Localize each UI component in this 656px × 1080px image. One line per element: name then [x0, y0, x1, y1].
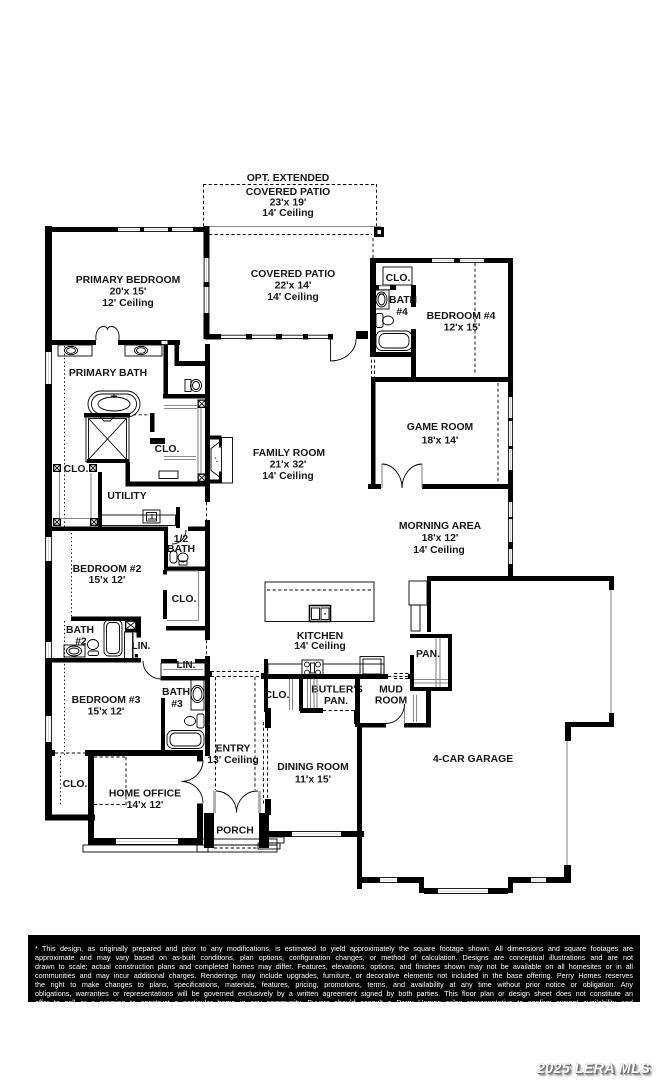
svg-text:COVERED PATIO: COVERED PATIO — [251, 269, 335, 280]
svg-text:FAMILY ROOM: FAMILY ROOM — [253, 448, 325, 459]
svg-text:BATH: BATH — [162, 687, 190, 698]
svg-text:13' Ceiling: 13' Ceiling — [207, 755, 259, 766]
svg-text:LIN.: LIN. — [132, 641, 151, 652]
svg-text:CLO.: CLO. — [386, 273, 411, 284]
svg-text:ENTRY: ENTRY — [216, 744, 251, 755]
svg-text:CLO.: CLO. — [64, 464, 89, 475]
svg-text:BEDROOM #2: BEDROOM #2 — [73, 564, 142, 575]
svg-text:ROOM: ROOM — [375, 696, 407, 707]
svg-text:BEDROOM #3: BEDROOM #3 — [72, 695, 141, 706]
svg-text:MUD: MUD — [379, 685, 403, 696]
svg-text:14'x 12': 14'x 12' — [127, 800, 164, 811]
svg-text:LIN.: LIN. — [177, 660, 196, 671]
svg-text:DINING ROOM: DINING ROOM — [277, 762, 349, 773]
svg-text:22'x 14': 22'x 14' — [275, 281, 312, 292]
svg-text:14' Ceiling: 14' Ceiling — [267, 292, 319, 303]
svg-text:15'x 12': 15'x 12' — [88, 707, 125, 718]
svg-text:PORCH: PORCH — [216, 826, 254, 837]
svg-text:CLO.: CLO. — [155, 444, 180, 455]
svg-text:UTILITY: UTILITY — [107, 491, 146, 502]
svg-text:HOME OFFICE: HOME OFFICE — [109, 789, 181, 800]
svg-text:COVERED PATIO: COVERED PATIO — [246, 187, 330, 198]
svg-text:14' Ceiling: 14' Ceiling — [413, 545, 465, 556]
svg-text:PAN.: PAN. — [324, 696, 348, 707]
svg-text:14' Ceiling: 14' Ceiling — [294, 641, 346, 652]
svg-text:CLO.: CLO. — [265, 690, 290, 701]
svg-text:18'x 12': 18'x 12' — [422, 533, 459, 544]
svg-text:12' Ceiling: 12' Ceiling — [102, 298, 154, 309]
svg-text:20'x 15': 20'x 15' — [110, 287, 147, 298]
svg-text:PAN.: PAN. — [416, 649, 440, 660]
svg-text:PRIMARY BATH: PRIMARY BATH — [69, 368, 147, 379]
svg-text:OPT. EXTENDED: OPT. EXTENDED — [247, 173, 330, 184]
svg-text:BEDROOM #4: BEDROOM #4 — [427, 311, 496, 322]
svg-text:#3: #3 — [171, 699, 183, 710]
svg-text:14' Ceiling: 14' Ceiling — [262, 471, 314, 482]
svg-text:PRIMARY BEDROOM: PRIMARY BEDROOM — [76, 275, 181, 286]
svg-text:#4: #4 — [396, 307, 408, 318]
svg-text:CLO.: CLO. — [63, 779, 88, 790]
svg-text:11'x 15': 11'x 15' — [295, 775, 331, 786]
svg-text:BATH: BATH — [66, 625, 94, 636]
svg-text:18'x 14': 18'x 14' — [422, 436, 459, 447]
svg-text:BATH: BATH — [389, 295, 417, 306]
svg-text:14' Ceiling: 14' Ceiling — [262, 208, 314, 219]
svg-text:MORNING AREA: MORNING AREA — [399, 521, 482, 532]
svg-text:4-CAR GARAGE: 4-CAR GARAGE — [433, 754, 513, 765]
svg-text:21'x 32': 21'x 32' — [270, 460, 307, 471]
svg-text:15'x 12': 15'x 12' — [89, 575, 126, 586]
svg-text:GAME ROOM: GAME ROOM — [407, 422, 473, 433]
svg-text:CLO.: CLO. — [172, 594, 197, 605]
svg-text:23'x 19': 23'x 19' — [270, 198, 307, 209]
